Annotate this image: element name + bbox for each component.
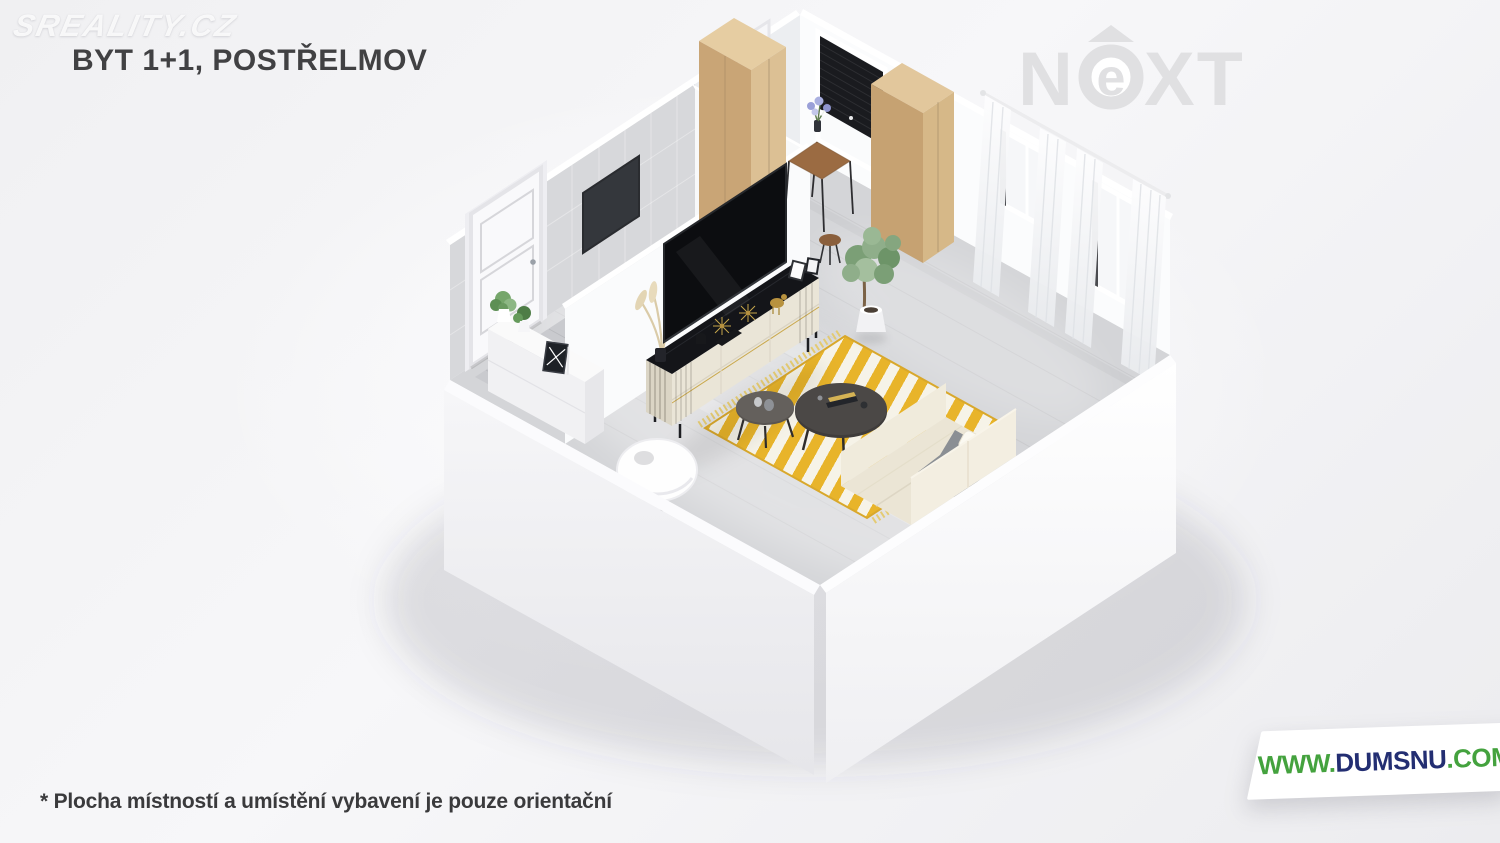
wardrobe-small [871, 63, 954, 263]
dumsnu-badge: WWW.DUMSNU.COM [1247, 722, 1500, 800]
disclaimer-text: * Plocha místností a umístění vybavení j… [40, 790, 612, 814]
floorplan-page: SREALITY.CZ BYT 1+1, POSTŘELMOV N e XT [0, 0, 1500, 843]
apartment-3d-render [0, 0, 1500, 843]
dumsnu-name: DUMSNU [1335, 743, 1447, 777]
dumsnu-suffix: .COM [1446, 741, 1500, 773]
dumsnu-text: WWW.DUMSNU.COM [1257, 741, 1500, 781]
book [543, 342, 572, 375]
dumsnu-prefix: WWW. [1257, 747, 1335, 780]
door-handle [530, 259, 536, 265]
